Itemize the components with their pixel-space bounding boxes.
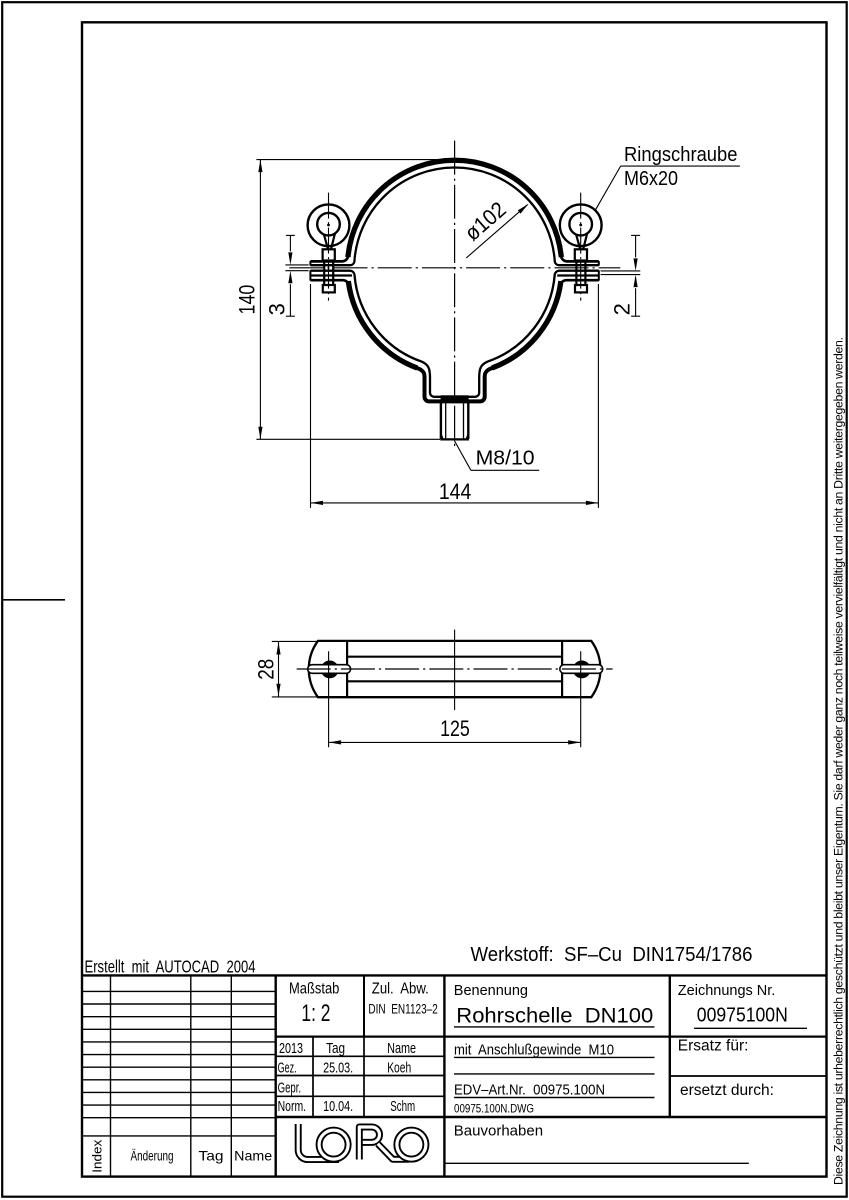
svg-text:DIN EN1123–2: DIN EN1123–2 (368, 1002, 437, 1017)
svg-text:Gez.: Gez. (278, 1059, 297, 1076)
svg-text:EDV–Art.Nr. 00975.100N: EDV–Art.Nr. 00975.100N (454, 1081, 605, 1098)
svg-text:Ersatz für:: Ersatz für: (678, 1037, 749, 1054)
svg-text:Zul. Abw.: Zul. Abw. (372, 981, 429, 998)
svg-text:Schm: Schm (390, 1098, 415, 1115)
svg-text:Benennung: Benennung (454, 983, 528, 999)
svg-text:125: 125 (440, 716, 470, 741)
svg-text:3: 3 (264, 303, 289, 315)
svg-text:Norm.: Norm. (278, 1098, 307, 1115)
svg-text:2013: 2013 (279, 1040, 303, 1057)
svg-text:140: 140 (235, 285, 260, 315)
svg-text:Ringschraube: Ringschraube (624, 143, 738, 166)
svg-text:Name: Name (387, 1040, 416, 1057)
svg-text:10.04.: 10.04. (323, 1098, 353, 1115)
svg-text:00975.100N.DWG: 00975.100N.DWG (454, 1101, 534, 1115)
svg-text:Tag: Tag (326, 1040, 345, 1057)
svg-text:Diese Zeichnung ist urheberrec: Diese Zeichnung ist urheberrechtlich ges… (832, 337, 846, 1185)
svg-text:mit Anschlußgewinde M10: mit Anschlußgewinde M10 (454, 1041, 614, 1058)
svg-text:Gepr.: Gepr. (278, 1079, 302, 1096)
svg-text:Maßstab: Maßstab (289, 981, 339, 998)
svg-text:Änderung: Änderung (131, 1148, 174, 1164)
svg-text:Bauvorhaben: Bauvorhaben (454, 1122, 543, 1139)
svg-text:Erstellt mit AUTOCAD 2004: Erstellt mit AUTOCAD 2004 (85, 957, 256, 977)
svg-text:Koeh: Koeh (387, 1059, 411, 1076)
svg-text:Name: Name (234, 1148, 272, 1164)
svg-text:Tag: Tag (199, 1148, 224, 1164)
svg-text:Rohrschelle DN100: Rohrschelle DN100 (456, 1005, 653, 1028)
svg-text:Index: Index (90, 1139, 105, 1173)
svg-text:Werkstoff: SF–Cu DIN1754/178: Werkstoff: SF–Cu DIN1754/1786 (471, 943, 753, 966)
svg-text:00975100N: 00975100N (697, 1004, 788, 1026)
svg-text:ersetzt durch:: ersetzt durch: (680, 1082, 774, 1099)
svg-text:28: 28 (254, 659, 279, 680)
svg-text:M6x20: M6x20 (624, 167, 678, 190)
svg-text:2: 2 (609, 303, 634, 315)
svg-text:1: 2: 1: 2 (301, 1000, 330, 1027)
svg-text:144: 144 (439, 479, 472, 504)
svg-text:Zeichnungs Nr.: Zeichnungs Nr. (678, 983, 776, 999)
svg-text:M8/10: M8/10 (476, 446, 535, 469)
svg-text:25.03.: 25.03. (323, 1059, 353, 1076)
